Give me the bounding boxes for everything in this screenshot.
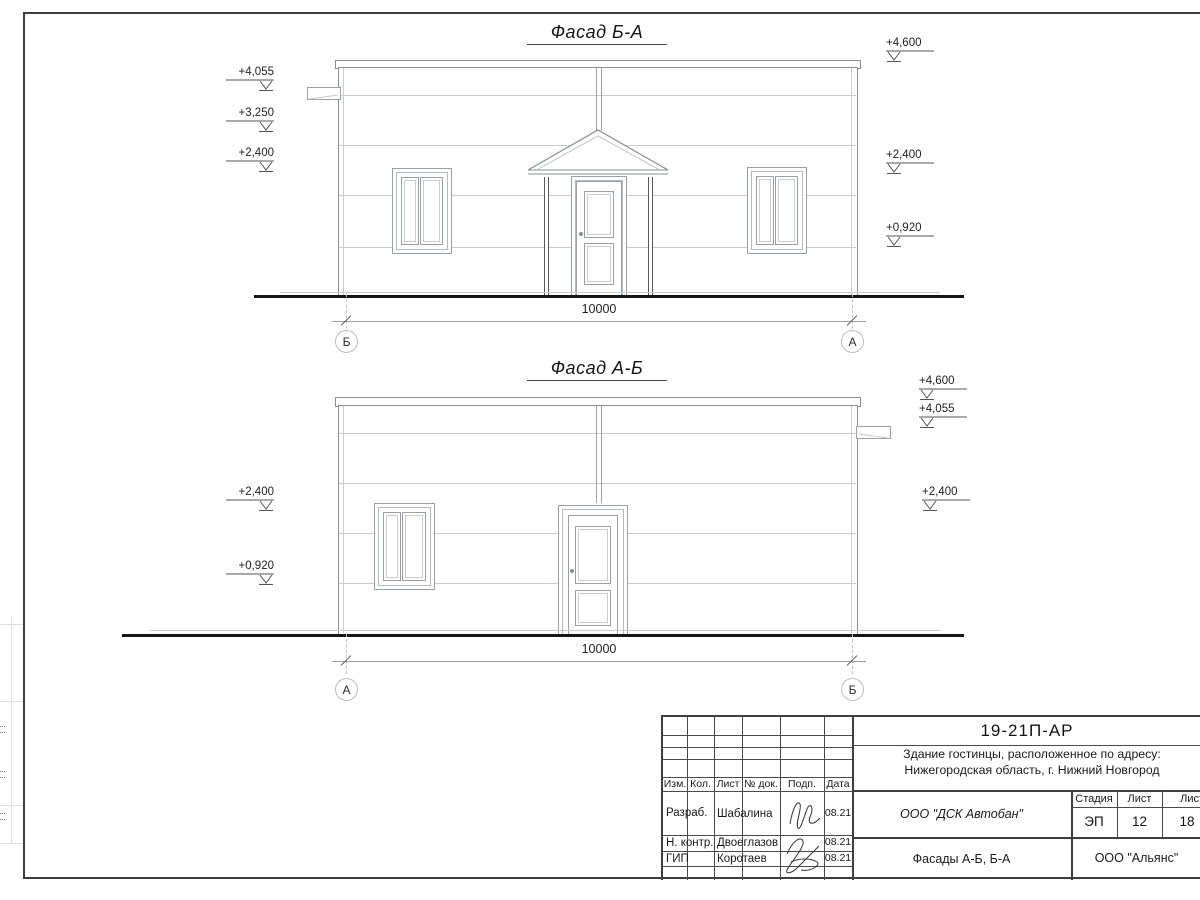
sig-date: 08.21 xyxy=(824,807,852,819)
drawing-sheet: { "drawing": { "facades": [ { "title": "… xyxy=(0,0,1200,900)
sig-date: 08.21 xyxy=(824,852,852,864)
title-block: Изм. Кол. Лист № док. Подп. Дата Разраб.… xyxy=(661,715,1200,880)
window-pane xyxy=(402,512,426,581)
door-panel xyxy=(575,526,611,584)
corner-trim xyxy=(851,68,852,295)
window-pane xyxy=(775,176,798,245)
left-sliver-text xyxy=(0,726,5,733)
object-address-line1: Здание гостинцы, расположенное по адресу… xyxy=(852,747,1200,761)
blind-area-line xyxy=(280,292,940,293)
title-block-line xyxy=(663,791,852,792)
elevation-value: +2,400 xyxy=(886,149,922,161)
sig-name: Двоеглазов xyxy=(717,837,778,849)
door-panel xyxy=(584,243,614,285)
elevation-value: +4,600 xyxy=(919,375,955,387)
frame-left-border xyxy=(23,12,25,878)
stage-label: Стадия xyxy=(1071,793,1117,805)
ground-line xyxy=(122,634,964,637)
left-sliver-line xyxy=(0,843,23,844)
axis-letter: Б xyxy=(849,683,857,697)
elevation-mark: +4,600 xyxy=(886,37,934,63)
sig-name: Шабалина xyxy=(717,808,773,820)
corner-trim xyxy=(851,406,852,633)
porch-post xyxy=(544,177,549,295)
axis-letter: А xyxy=(848,335,856,349)
elevation-mark: +2,400 xyxy=(886,149,934,175)
sig-date: 08.21 xyxy=(824,836,852,848)
axis-line xyxy=(346,294,347,334)
window xyxy=(747,167,807,254)
col-header: № док. xyxy=(742,778,780,790)
sheet-title: Фасады А-Б, Б-А xyxy=(852,852,1071,866)
title-block-line xyxy=(663,747,852,748)
vent-pipe xyxy=(596,68,602,130)
elevation-value: +0,920 xyxy=(886,222,922,234)
back-door xyxy=(558,505,628,636)
title-block-line xyxy=(714,717,715,880)
window-pane xyxy=(420,177,443,245)
sheets-total: 18 xyxy=(1162,814,1200,829)
stage-value: ЭП xyxy=(1071,814,1117,829)
project-code: 19-21П-АР xyxy=(852,721,1200,741)
elevation-mark: +4,055 xyxy=(919,403,967,429)
title-block-line xyxy=(663,759,852,760)
window xyxy=(392,168,452,254)
designer-org: ООО "ДСК Автобан" xyxy=(852,807,1071,821)
window-frame xyxy=(396,172,448,250)
title-block-line xyxy=(852,745,1200,746)
drain-scupper xyxy=(307,87,341,100)
elevation-mark: +4,600 xyxy=(919,375,967,401)
col-header: Лист xyxy=(714,778,742,790)
left-sliver-line xyxy=(11,618,12,843)
col-header: Дата xyxy=(824,778,852,790)
elevation-value: +2,400 xyxy=(239,147,275,159)
object-address-line2: Нижегородская область, г. Нижний Новгоро… xyxy=(852,763,1200,777)
title-block-line xyxy=(1071,807,1200,808)
door-handle xyxy=(570,569,574,573)
porch-canopy xyxy=(526,127,670,177)
axis-bubble: А xyxy=(841,330,864,353)
left-sliver-line xyxy=(0,805,23,806)
elevation-mark: +2,400 xyxy=(226,147,274,173)
elevation-value: +4,055 xyxy=(239,66,275,78)
sheet-label: Лист xyxy=(1117,793,1162,805)
sig-role: ГИП xyxy=(666,853,689,865)
elevation-mark: +3,250 xyxy=(226,107,274,133)
elevation-mark: +2,400 xyxy=(226,486,274,512)
signature-scribble xyxy=(782,796,824,836)
col-header: Подп. xyxy=(780,778,824,790)
axis-bubble: Б xyxy=(841,678,864,701)
window-casement xyxy=(401,177,419,245)
left-sliver-line xyxy=(0,701,23,702)
door-panel xyxy=(575,590,611,626)
ground-line xyxy=(254,295,964,298)
window-casement xyxy=(383,512,401,581)
elevation-value: +2,400 xyxy=(239,486,275,498)
door-panel xyxy=(584,191,614,238)
title-block-line xyxy=(852,790,1200,792)
elevation-mark: +0,920 xyxy=(226,560,274,586)
signature-scribble xyxy=(777,832,825,878)
entrance-door xyxy=(571,176,627,296)
corner-trim xyxy=(343,406,344,633)
axis-line xyxy=(852,294,853,334)
door-handle xyxy=(579,232,583,236)
elevation-mark: +0,920 xyxy=(886,222,934,248)
axis-letter: Б xyxy=(343,335,351,349)
sig-role: Разраб. xyxy=(666,807,707,819)
sheets-label: Листов xyxy=(1162,793,1200,805)
axis-line xyxy=(852,634,853,674)
col-header: Кол. xyxy=(687,778,714,790)
axis-bubble: Б xyxy=(335,330,358,353)
corner-trim xyxy=(343,68,344,295)
dimension-line xyxy=(332,661,866,662)
dimension-line xyxy=(332,321,866,322)
elevation-mark: +4,055 xyxy=(226,66,274,92)
drain-scupper xyxy=(856,426,891,439)
porch-post xyxy=(648,177,653,295)
facade-title: Фасад Б-А xyxy=(527,22,667,45)
window-frame xyxy=(751,171,803,250)
vent-pipe xyxy=(596,406,602,503)
window-casement xyxy=(756,176,774,245)
left-sliver-text xyxy=(0,771,5,778)
elevation-mark: +2,400 xyxy=(922,486,970,512)
left-sliver-text xyxy=(0,813,5,820)
window xyxy=(374,503,435,590)
elevation-value: +3,250 xyxy=(239,107,275,119)
sig-role: Н. контр. xyxy=(666,837,713,849)
dimension-value: 10000 xyxy=(559,642,639,656)
dimension-value: 10000 xyxy=(559,302,639,316)
left-sliver-line xyxy=(0,624,23,625)
sheet-number: 12 xyxy=(1117,814,1162,829)
blind-area-line xyxy=(150,630,940,631)
elevation-value: +0,920 xyxy=(239,560,275,572)
sig-name: Коротаев xyxy=(717,853,767,865)
frame-top-border xyxy=(23,12,1200,14)
elevation-value: +2,400 xyxy=(922,486,958,498)
axis-letter: А xyxy=(342,683,350,697)
elevation-value: +4,600 xyxy=(886,37,922,49)
axis-bubble: А xyxy=(335,678,358,701)
title-block-line xyxy=(852,837,1200,839)
client-org: ООО "Альянс" xyxy=(1071,851,1200,865)
col-header: Изм. xyxy=(663,778,687,790)
window-frame xyxy=(378,507,431,586)
axis-line xyxy=(346,634,347,674)
facade-title: Фасад А-Б xyxy=(527,358,667,381)
title-block-line xyxy=(663,735,852,736)
elevation-value: +4,055 xyxy=(919,403,955,415)
